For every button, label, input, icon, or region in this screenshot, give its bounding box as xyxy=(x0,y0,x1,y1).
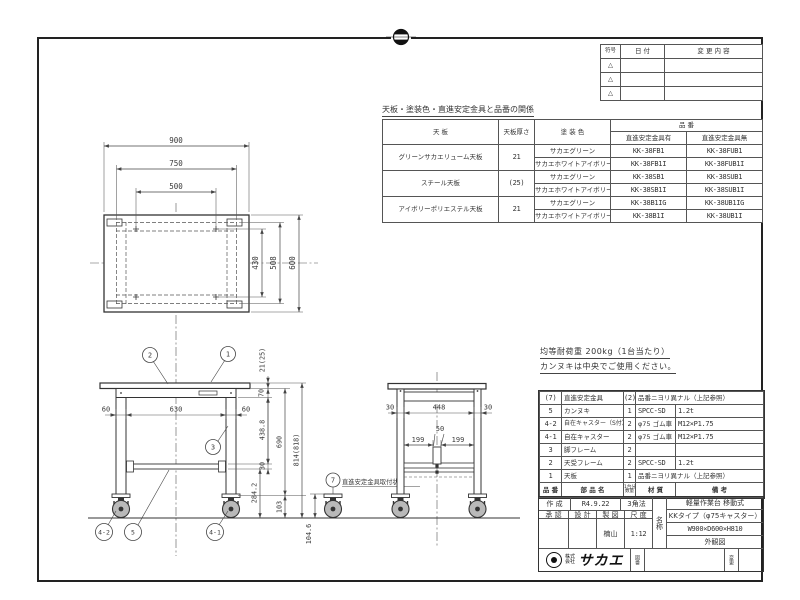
col-with: 直進安定金具有 xyxy=(611,132,687,145)
part-material: 品番ニヨリ異ナル（上記参照） xyxy=(636,470,764,483)
model-with: KK-38FB1I xyxy=(611,158,687,171)
load-notes: 均等耐荷重 200kg（1台当たり） カンヌキは中央でご使用ください。 xyxy=(540,346,676,374)
dim-label: 284.2 xyxy=(251,483,259,503)
part-no: 4-2 xyxy=(540,418,562,431)
drawing-type: 外観図 xyxy=(667,536,763,549)
model-with: KK-38B1IG xyxy=(611,197,687,210)
model-without: KK-38UB1IG xyxy=(687,197,763,210)
top-name: スチール天板 xyxy=(383,171,499,197)
company-logo: 株式会社 サカエ xyxy=(539,549,631,571)
product-name: 軽量作業台 移動式 xyxy=(667,497,763,510)
punch-hole-icon xyxy=(386,30,416,45)
col-thickness: 天板厚さ xyxy=(499,120,535,145)
callout-balloon: 2 xyxy=(148,352,152,360)
part-material xyxy=(636,444,676,457)
nameplate xyxy=(199,391,217,395)
dim-label: 104.6 xyxy=(305,524,313,544)
dim-label: 21(25) xyxy=(259,348,267,373)
dim-label: 199 xyxy=(452,436,465,444)
part-material: SPCC-SD xyxy=(636,405,676,418)
company-prefix: 株式会社 xyxy=(564,555,577,566)
part-name: 自在キャスター（S付） xyxy=(562,418,624,431)
part-no: 4-1 xyxy=(540,431,562,444)
part-qty: 2 xyxy=(624,418,636,431)
part-qty: 2 xyxy=(624,444,636,457)
model-without: KK-38FUB1I xyxy=(687,158,763,171)
revision-col-date: 日 付 xyxy=(621,45,665,59)
part-remarks: M12×P1.75 xyxy=(676,418,764,431)
drawing-sheet: { "revision_table": { "col_mark": "符号", … xyxy=(0,0,800,600)
name-label: 名称 xyxy=(653,497,667,549)
callout-balloon: 3 xyxy=(211,444,215,452)
caster-icon xyxy=(112,494,130,518)
relation-table-title: 天板・塗装色・直進安定金具と品番の関係 xyxy=(382,104,763,117)
drawing-no-value xyxy=(645,549,725,571)
title-block: 作 成 R4.9.22 3角法 承 認 設 計 製 図 尺 度 楠山 1:12 … xyxy=(538,496,764,572)
model-with: KK-38B1I xyxy=(611,210,687,223)
part-remarks: 1.2t xyxy=(676,457,764,470)
paint-color: サカエグリーン xyxy=(535,145,611,158)
approve-label: 承 認 xyxy=(539,511,569,519)
load-note-2: カンヌキは中央でご使用ください。 xyxy=(540,361,676,374)
model-with: KK-38SB1 xyxy=(611,171,687,184)
revision-desc xyxy=(665,59,763,73)
top-thickness: 21 xyxy=(499,145,535,171)
dim-label: 508 xyxy=(269,256,278,270)
top-name: アイボリーポリエステル天板 xyxy=(383,197,499,223)
design-value xyxy=(569,519,597,549)
revision-col-desc: 変 更 内 容 xyxy=(665,45,763,59)
callout-balloon: 1 xyxy=(226,351,230,359)
part-name: 脚フレーム xyxy=(562,444,624,457)
callout-balloon: 4-1 xyxy=(209,529,221,537)
revision-col-mark: 符号 xyxy=(601,45,621,59)
model-without: KK-38FUB1 xyxy=(687,145,763,158)
dim-label: 199 xyxy=(412,436,425,444)
paint-color: サカエホワイトアイボリー xyxy=(535,158,611,171)
top-name: グリーンサカエリューム天板 xyxy=(383,145,499,171)
paint-color: サカエホワイトアイボリー xyxy=(535,210,611,223)
shelf-bracket xyxy=(433,447,441,464)
revision-table: 符号 日 付 変 更 内 容 △ △ △ xyxy=(600,44,763,101)
dim-label: 448 xyxy=(433,404,446,412)
col-hinban: 品 番 xyxy=(611,120,763,132)
revision-date xyxy=(621,87,665,101)
part-remarks: 1.2t xyxy=(676,405,764,418)
part-name: カンヌキ xyxy=(562,405,624,418)
sakae-logo-icon xyxy=(546,552,562,568)
dim-label: 103 xyxy=(276,501,284,513)
revision-date xyxy=(621,59,665,73)
part-remarks: M12×P1.75 xyxy=(676,431,764,444)
part-no: 1 xyxy=(540,470,562,483)
dim-label: 630 xyxy=(170,406,183,414)
revision-mark: △ xyxy=(601,87,621,101)
shelf-bar xyxy=(126,464,226,469)
part-material: φ75 ゴム車 xyxy=(636,431,676,444)
plan-view: 900 750 500 430 508 600 xyxy=(104,136,303,312)
revision-date xyxy=(621,73,665,87)
dim-label: 60 xyxy=(102,406,110,414)
dim-label: 500 xyxy=(169,182,183,191)
part-material: SPCC-SD xyxy=(636,457,676,470)
callout-balloon: 5 xyxy=(131,529,135,537)
parts-list: (7) 直進安定金具 (2) 品番ニヨリ異ナル（上記参照） 5 カンヌキ 1 S… xyxy=(538,390,765,499)
dim-label: 438.8 xyxy=(259,420,267,440)
part-name: 自在キャスター xyxy=(562,431,624,444)
top-thickness: (25) xyxy=(499,171,535,197)
part-material: φ75 ゴム車 xyxy=(636,418,676,431)
scale-label: 尺 度 xyxy=(625,511,653,519)
product-type: KKタイプ（φ75キャスター） xyxy=(667,510,763,523)
part-name: 直進安定金具 xyxy=(562,392,624,405)
part-qty: (2) xyxy=(624,392,636,405)
model-without: KK-38UB1I xyxy=(687,210,763,223)
dim-label: 30 xyxy=(484,404,492,412)
dim-label: 600 xyxy=(288,256,297,270)
relation-table-grid: 天 板 天板厚さ 塗 装 色 品 番 直進安定金具有 直進安定金具無 グリーンサ… xyxy=(382,119,763,223)
dim-label: 750 xyxy=(169,159,183,168)
revision-desc xyxy=(665,73,763,87)
relation-table: 天板・塗装色・直進安定金具と品番の関係 天 板 天板厚さ 塗 装 色 品 番 直… xyxy=(382,104,763,223)
design-label: 設 計 xyxy=(569,511,597,519)
paint-color: サカエグリーン xyxy=(535,197,611,210)
revision-desc xyxy=(665,87,763,101)
part-no: 2 xyxy=(540,457,562,470)
dim-label: 70 xyxy=(258,389,266,397)
draftsman-name: 楠山 xyxy=(597,519,625,549)
draft-label: 製 図 xyxy=(597,511,625,519)
part-qty: 1 xyxy=(624,470,636,483)
part-no: 3 xyxy=(540,444,562,457)
load-note-1: 均等耐荷重 200kg（1台当たり） xyxy=(540,346,670,359)
col-without: 直進安定金具無 xyxy=(687,132,763,145)
dim-label: 430 xyxy=(251,256,260,270)
approve-value xyxy=(539,519,569,549)
change-label: 変更 xyxy=(725,549,739,571)
revision-mark: △ xyxy=(601,73,621,87)
caster-icon xyxy=(392,494,410,518)
dim-label: 30 xyxy=(259,462,267,470)
paint-color: サカエホワイトアイボリー xyxy=(535,184,611,197)
part-no: (7) xyxy=(540,392,562,405)
dim-label: 900 xyxy=(169,136,183,145)
change-value xyxy=(739,549,763,571)
model-with: KK-38FB1 xyxy=(611,145,687,158)
part-name: 天板 xyxy=(562,470,624,483)
scale-value: 1:12 xyxy=(625,519,653,549)
dim-label: 30 xyxy=(386,404,394,412)
paint-color: サカエグリーン xyxy=(535,171,611,184)
model-without: KK-38SUB1I xyxy=(687,184,763,197)
company-name: サカエ xyxy=(579,550,624,570)
model-with: KK-38SB1I xyxy=(611,184,687,197)
dim-label: 814(818) xyxy=(293,434,301,467)
side-view: 30 448 30 50 199 199 xyxy=(386,384,492,518)
callout-balloon: 4-2 xyxy=(98,529,110,537)
part-no: 5 xyxy=(540,405,562,418)
dim-label: 50 xyxy=(436,425,444,433)
model-without: KK-38SUB1 xyxy=(687,171,763,184)
part-qty: 2 xyxy=(624,431,636,444)
dim-label: 60 xyxy=(242,406,250,414)
part-qty: 1 xyxy=(624,405,636,418)
callout-balloon: 7 xyxy=(331,477,335,485)
revision-table-grid: 符号 日 付 変 更 内 容 △ △ △ xyxy=(600,44,763,101)
top-thickness: 21 xyxy=(499,197,535,223)
col-top: 天 板 xyxy=(383,120,499,145)
caster-note: 直進安定金具取付状態 xyxy=(342,477,405,486)
product-size: W900×D600×H810 xyxy=(667,523,763,536)
caster-icon xyxy=(469,494,487,518)
front-view: 60 630 60 21(25) 70 438.8 xyxy=(96,347,421,545)
drawing-no-label: 図番 xyxy=(631,549,645,571)
part-material: 品番ニヨリ異ナル（上記参照） xyxy=(636,392,764,405)
dim-label: 690 xyxy=(276,436,284,448)
revision-mark: △ xyxy=(601,59,621,73)
col-color: 塗 装 色 xyxy=(535,120,611,145)
parts-list-grid: (7) 直進安定金具 (2) 品番ニヨリ異ナル（上記参照） 5 カンヌキ 1 S… xyxy=(539,391,764,498)
part-name: 天受フレーム xyxy=(562,457,624,470)
part-remarks xyxy=(676,444,764,457)
caster-icon xyxy=(222,494,240,518)
part-qty: 2 xyxy=(624,457,636,470)
